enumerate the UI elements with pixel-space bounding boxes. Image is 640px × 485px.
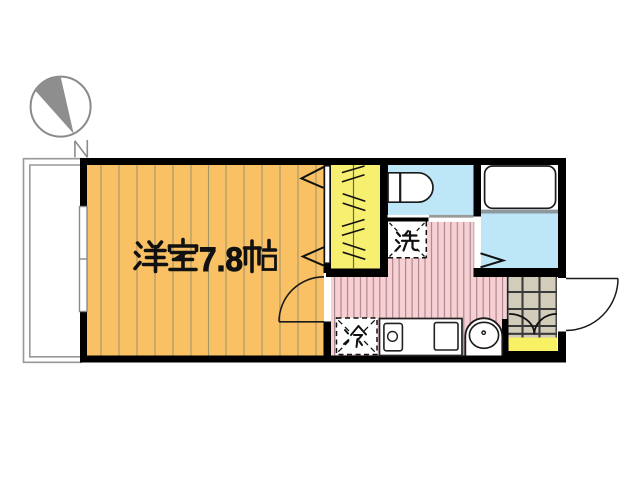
svg-text:7.8: 7.8 [199,241,243,279]
